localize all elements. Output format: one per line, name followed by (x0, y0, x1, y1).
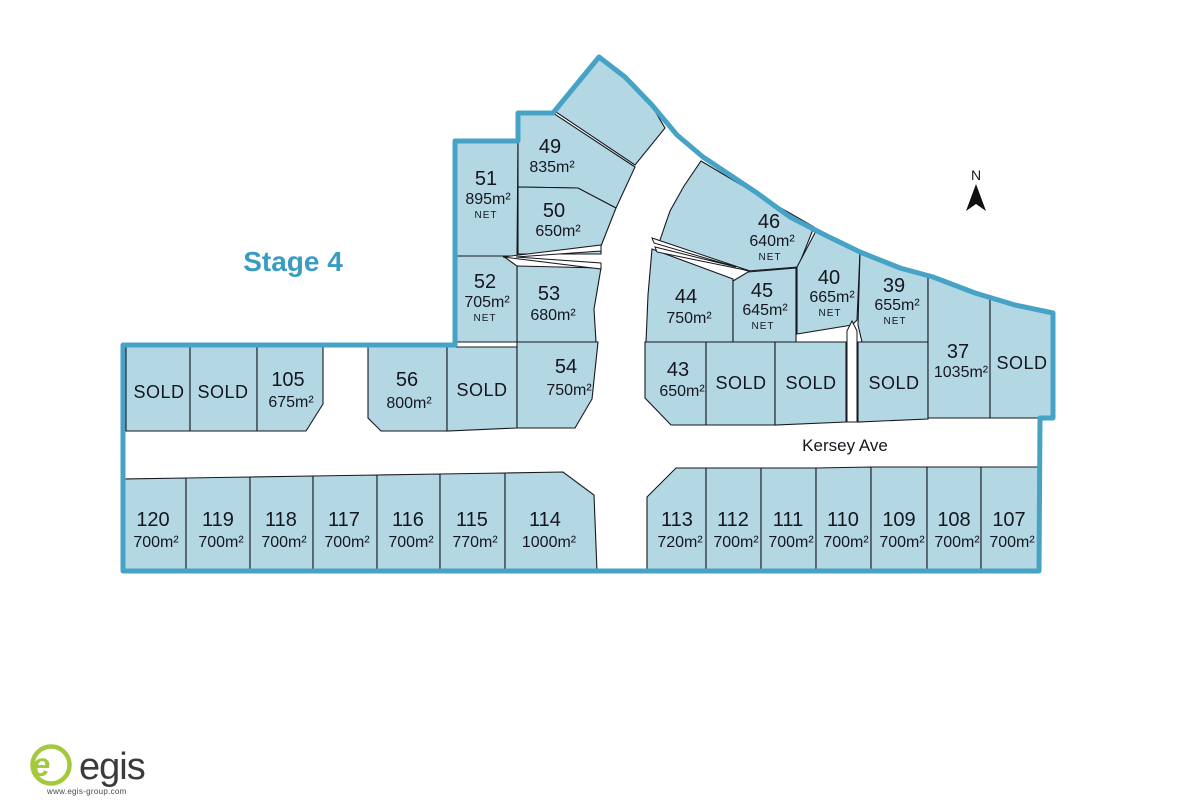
lot-44-number: 44 (675, 286, 697, 308)
lot-114-area: 1000m² (522, 534, 577, 551)
lot-105[interactable]: 105 675m² (257, 347, 323, 431)
lot-56-area: 800m² (386, 395, 432, 412)
lot-45[interactable]: 45 645m² NET (733, 268, 796, 342)
lot-37[interactable]: 37 1035m² (928, 277, 990, 418)
lot-111-area: 700m² (768, 534, 814, 551)
lot-53-area: 680m² (530, 307, 576, 324)
lot-39-area: 655m² (874, 297, 920, 314)
lot-sold-1-label: SOLD (133, 382, 184, 402)
lot-40-net: NET (819, 308, 842, 319)
lot-56[interactable]: 56 800m² (368, 347, 447, 431)
lot-117[interactable]: 117 700m² (313, 475, 377, 571)
lot-118[interactable]: 118 700m² (250, 476, 313, 571)
lot-49-area: 835m² (529, 159, 575, 176)
lot-56-number: 56 (396, 369, 418, 391)
lot-112[interactable]: 112 700m² (706, 468, 761, 571)
north-arrow: N (966, 167, 986, 211)
subdivision-plan: SOLD SOLD 105 675m² 56 800m² SOLD 54 750… (0, 0, 1200, 800)
lot-112-area: 700m² (713, 534, 759, 551)
lot-sold-2[interactable]: SOLD (190, 347, 257, 431)
lot-117-area: 700m² (324, 534, 370, 551)
lot-107-area: 700m² (989, 534, 1035, 551)
lot-115-area: 770m² (452, 534, 498, 551)
lot-107[interactable]: 107 700m² (981, 467, 1038, 571)
lot-119-area: 700m² (198, 534, 244, 551)
lot-120-area: 700m² (133, 534, 179, 551)
lot-sold-6[interactable]: SOLD (858, 342, 928, 422)
lot-109-area: 700m² (879, 534, 925, 551)
lot-113-area: 720m² (657, 534, 703, 551)
lot-116-area: 700m² (388, 534, 434, 551)
lot-45-net: NET (752, 321, 775, 332)
lot-43-area: 650m² (659, 383, 705, 400)
lot-sold-5[interactable]: SOLD (775, 342, 846, 425)
lot-46-area: 640m² (749, 233, 795, 250)
lot-49-number: 49 (539, 136, 561, 158)
subdivision-plan-svg: SOLD SOLD 105 675m² 56 800m² SOLD 54 750… (0, 0, 1200, 800)
lot-109-number: 109 (882, 509, 915, 531)
lot-sold-3-label: SOLD (456, 380, 507, 400)
lot-50-area: 650m² (535, 223, 581, 240)
lot-40-number: 40 (818, 267, 840, 289)
lot-51-net: NET (475, 210, 498, 221)
lot-113[interactable]: 113 720m² (647, 468, 706, 571)
lot-51-area: 895m² (465, 191, 511, 208)
lot-53[interactable]: 53 680m² (517, 266, 601, 342)
lot-113-number: 113 (661, 509, 693, 531)
egis-logo-url: www.egis-group.com (46, 787, 127, 796)
lot-116-number: 116 (392, 509, 424, 531)
lot-sold-1[interactable]: SOLD (126, 347, 190, 431)
lot-110-area: 700m² (823, 534, 869, 551)
lot-40-area: 665m² (809, 289, 855, 306)
lot-52-number: 52 (474, 271, 496, 293)
lot-109[interactable]: 109 700m² (871, 467, 927, 571)
lot-54-area: 750m² (546, 382, 592, 399)
lot-50-number: 50 (543, 200, 565, 222)
lot-116[interactable]: 116 700m² (377, 474, 440, 571)
lot-44-area: 750m² (666, 310, 712, 327)
lot-sold-7-label: SOLD (996, 353, 1047, 373)
lot-110-number: 110 (827, 509, 859, 531)
lot-118-number: 118 (265, 509, 297, 531)
lot-sold-5-label: SOLD (785, 373, 836, 393)
lot-119-number: 119 (202, 509, 234, 531)
egis-logo: e egis www.egis-group.com (32, 746, 145, 796)
lot-39-number: 39 (883, 275, 905, 297)
road-kersey-ave-label: Kersey Ave (802, 436, 888, 455)
lot-39-net: NET (884, 316, 907, 327)
lot-sold-2-label: SOLD (197, 382, 248, 402)
lot-sold-4[interactable]: SOLD (706, 342, 775, 425)
lot-120-number: 120 (136, 509, 169, 531)
north-arrow-label: N (971, 167, 981, 183)
lot-108-number: 108 (937, 509, 970, 531)
lot-52-area: 705m² (464, 294, 510, 311)
lot-54-number: 54 (555, 356, 577, 378)
pathway-reserve-strip (847, 321, 857, 422)
lot-120[interactable]: 120 700m² (123, 478, 186, 571)
lot-53-number: 53 (538, 283, 560, 305)
lot-105-number: 105 (271, 369, 304, 391)
lot-52[interactable]: 52 705m² NET (455, 256, 517, 342)
lot-45-area: 645m² (742, 302, 788, 319)
lot-43-number: 43 (667, 359, 689, 381)
lot-sold-6-label: SOLD (868, 373, 919, 393)
lot-111[interactable]: 111 700m² (761, 468, 816, 571)
lot-110[interactable]: 110 700m² (816, 467, 871, 571)
lot-108[interactable]: 108 700m² (927, 467, 981, 571)
lot-114-number: 114 (529, 509, 561, 531)
stage-title: Stage 4 (243, 246, 343, 277)
lot-107-number: 107 (992, 509, 1025, 531)
lot-111-number: 111 (773, 509, 803, 531)
lot-115[interactable]: 115 770m² (440, 473, 505, 571)
lot-117-number: 117 (328, 509, 360, 531)
lot-119[interactable]: 119 700m² (186, 477, 250, 571)
lot-sold-7[interactable]: SOLD (990, 298, 1053, 418)
lot-108-area: 700m² (934, 534, 980, 551)
lot-sold-4-label: SOLD (715, 373, 766, 393)
egis-logo-text: egis (79, 746, 145, 788)
lot-118-area: 700m² (261, 534, 307, 551)
lot-105-area: 675m² (268, 394, 314, 411)
egis-logo-mark: e (32, 746, 50, 783)
lot-46-net: NET (759, 252, 782, 263)
lot-43[interactable]: 43 650m² (645, 342, 706, 425)
lot-51[interactable]: 51 895m² NET (455, 141, 518, 256)
lot-51-number: 51 (475, 168, 497, 190)
lot-112-number: 112 (717, 509, 749, 531)
lot-sold-3[interactable]: SOLD (447, 347, 517, 431)
lot-37-number: 37 (947, 341, 969, 363)
lot-114[interactable]: 114 1000m² (505, 472, 597, 571)
lot-52-net: NET (474, 313, 497, 324)
lot-54[interactable]: 54 750m² (517, 342, 598, 428)
lot-45-number: 45 (751, 280, 773, 302)
north-arrow-icon (966, 184, 986, 211)
lot-115-number: 115 (456, 509, 488, 531)
lot-37-area: 1035m² (934, 364, 989, 381)
lot-46-number: 46 (758, 211, 780, 233)
